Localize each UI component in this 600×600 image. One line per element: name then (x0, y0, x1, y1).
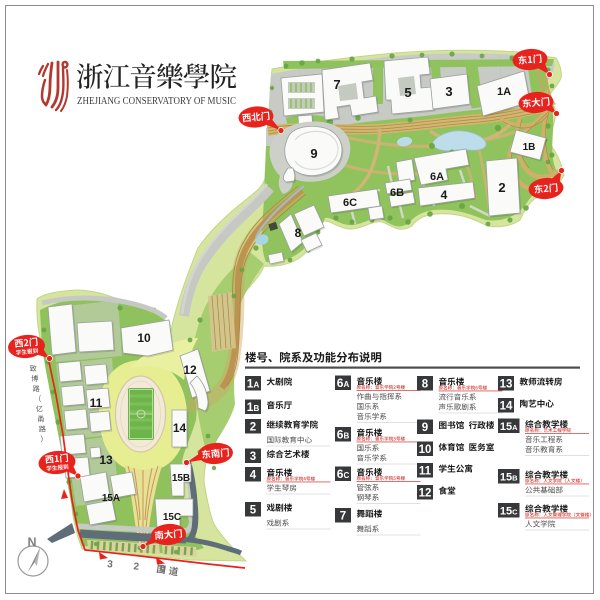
svg-text:8: 8 (295, 226, 302, 240)
svg-text:13: 13 (99, 453, 113, 467)
svg-text:6A: 6A (430, 171, 444, 183)
svg-text:12: 12 (419, 488, 432, 500)
svg-text:2: 2 (250, 422, 256, 434)
svg-text:4: 4 (250, 470, 257, 482)
svg-text:12: 12 (183, 363, 197, 377)
svg-text:9: 9 (422, 422, 428, 434)
svg-text:14: 14 (173, 421, 187, 435)
svg-text:8: 8 (422, 379, 429, 391)
svg-text:14: 14 (500, 401, 513, 413)
svg-text:11: 11 (90, 396, 103, 410)
svg-text:15C: 15C (163, 512, 181, 523)
svg-text:13: 13 (500, 379, 513, 391)
svg-text:15A: 15A (500, 421, 518, 433)
svg-text:7: 7 (340, 511, 346, 523)
svg-text:15B: 15B (172, 473, 190, 484)
svg-text:1B: 1B (523, 142, 536, 153)
svg-text:6B: 6B (390, 187, 404, 199)
svg-text:9: 9 (310, 146, 317, 161)
svg-text:5: 5 (404, 85, 411, 100)
svg-text:15C: 15C (500, 506, 518, 518)
svg-text:10: 10 (419, 444, 432, 456)
svg-text:5: 5 (250, 505, 257, 517)
svg-text:3: 3 (250, 451, 256, 463)
svg-text:7: 7 (333, 77, 340, 92)
svg-text:3: 3 (445, 84, 452, 99)
svg-text:10: 10 (137, 331, 151, 345)
svg-text:6C: 6C (343, 197, 357, 209)
svg-text:2: 2 (498, 180, 505, 195)
svg-text:1A: 1A (497, 86, 511, 98)
svg-text:4: 4 (441, 188, 448, 202)
svg-text:15A: 15A (102, 493, 120, 504)
svg-text:ZHEJIANG CONSERVATORY OF MUSIC: ZHEJIANG CONSERVATORY OF MUSIC (77, 95, 236, 107)
svg-text:N: N (28, 536, 37, 550)
svg-text:11: 11 (419, 466, 432, 478)
svg-text:15B: 15B (500, 472, 518, 484)
